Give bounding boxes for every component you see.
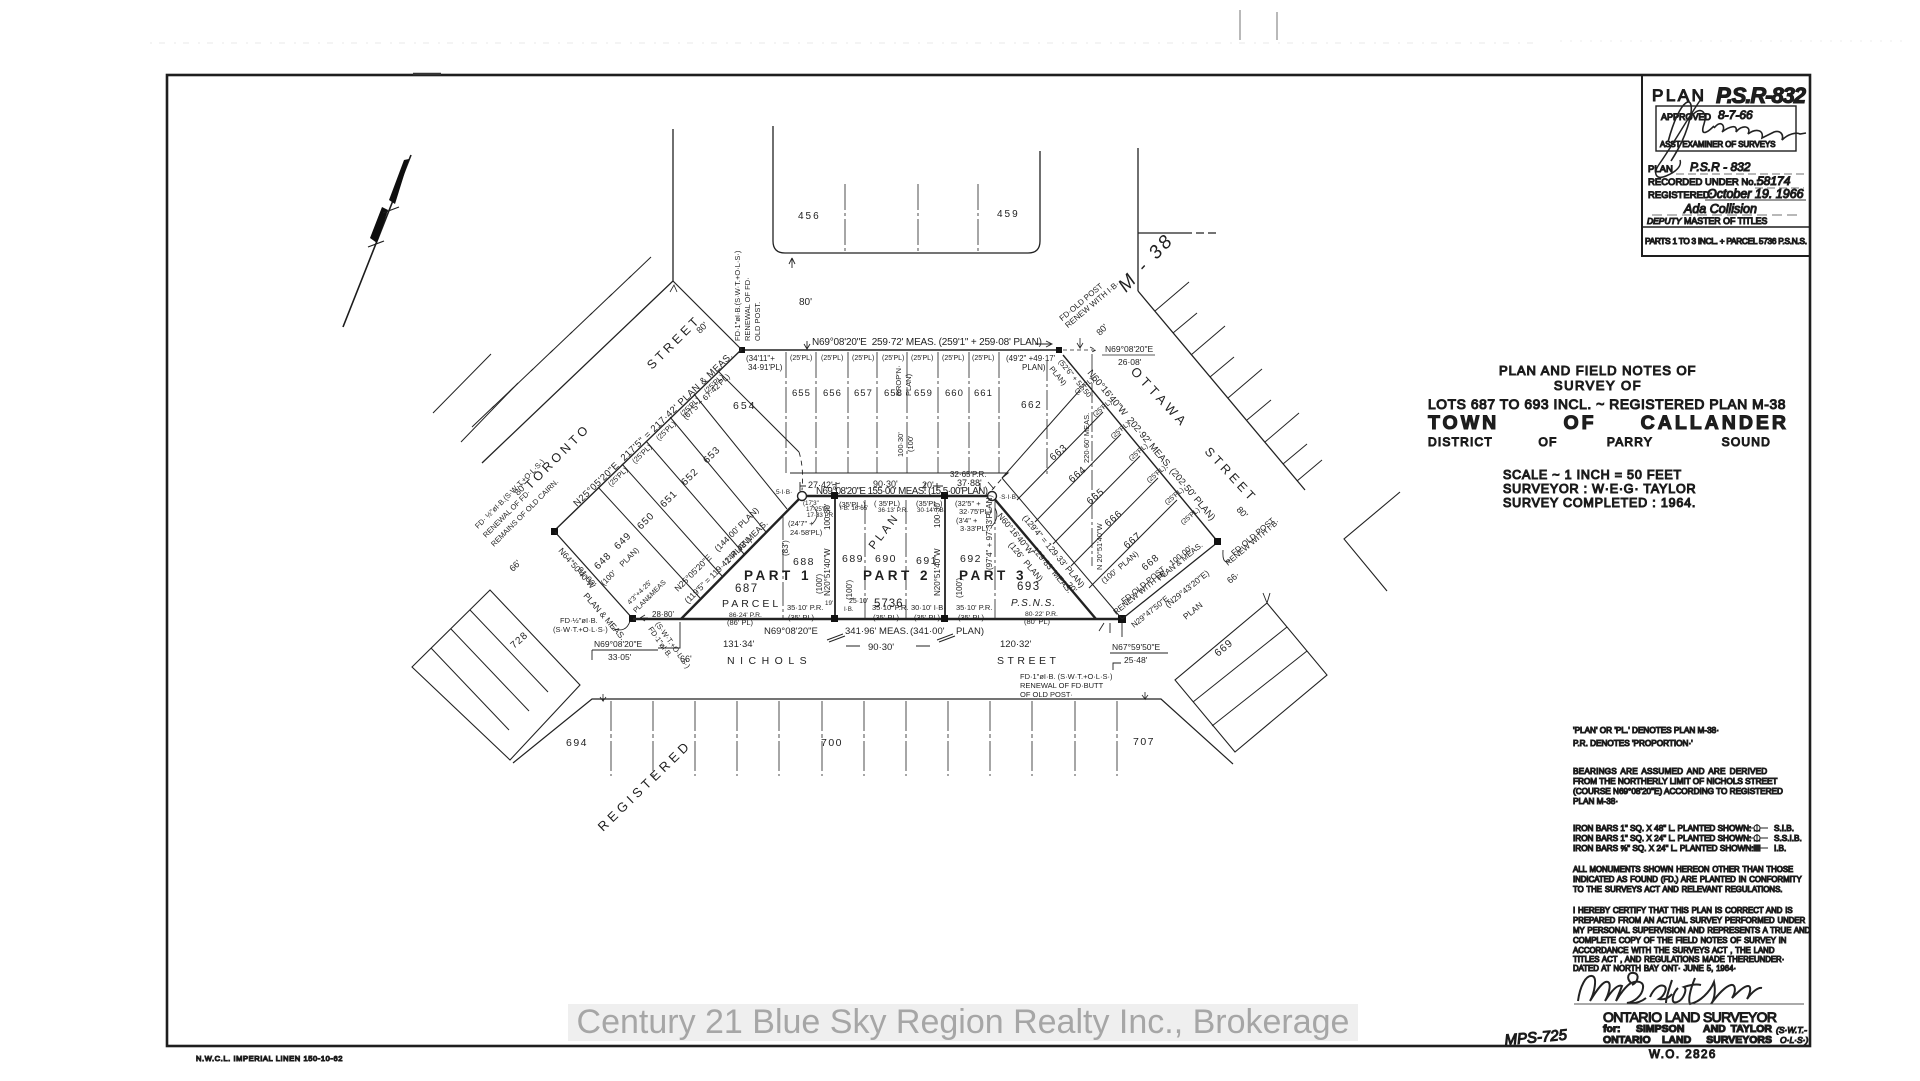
svg-text:FD·½"øI·B.: FD·½"øI·B. bbox=[560, 616, 598, 625]
svg-text:(24'7" +: (24'7" + bbox=[788, 519, 814, 528]
svg-text:PROP'N·: PROP'N· bbox=[894, 365, 903, 396]
svg-text:667: 667 bbox=[1122, 530, 1144, 551]
svg-text:687: 687 bbox=[735, 583, 759, 595]
svg-text:N69°08'20"E: N69°08'20"E bbox=[594, 639, 643, 649]
svg-text:FD·1"øI·B.(S·W·T.+O·L·S·): FD·1"øI·B.(S·W·T.+O·L·S·) bbox=[733, 250, 742, 341]
svg-text:ASST EXAMINER OF SURVEYS: ASST EXAMINER OF SURVEYS bbox=[1660, 140, 1775, 149]
svg-text:STREET: STREET bbox=[997, 655, 1059, 667]
svg-text:665: 665 bbox=[1085, 486, 1107, 507]
svg-text:PARCEL: PARCEL bbox=[722, 598, 781, 610]
svg-text:663: 663 bbox=[1048, 442, 1070, 463]
svg-text:27·42': 27·42' bbox=[808, 480, 833, 490]
svg-text:661: 661 bbox=[974, 388, 993, 399]
svg-text:707: 707 bbox=[1133, 736, 1155, 748]
svg-text:(25'PL): (25'PL) bbox=[882, 355, 904, 362]
svg-text:PREPARED FROM AN ACTUAL SURVEY: PREPARED FROM AN ACTUAL SURVEY PERFORMED… bbox=[1573, 916, 1806, 925]
svg-text:N 20°51'40"W: N 20°51'40"W bbox=[1095, 522, 1104, 570]
svg-text:66': 66' bbox=[507, 558, 523, 574]
svg-text:STREET: STREET bbox=[1202, 444, 1260, 505]
svg-text:I·B. 16·65': I·B. 16·65' bbox=[840, 505, 868, 512]
svg-text:S.S.I.B.: S.S.I.B. bbox=[1774, 834, 1802, 843]
svg-text:30·10' I·B·: 30·10' I·B· bbox=[911, 603, 946, 612]
svg-text:(83'): (83') bbox=[781, 540, 790, 556]
svg-text:I HEREBY CERTIFY THAT THIS PLA: I HEREBY CERTIFY THAT THIS PLAN IS CORRE… bbox=[1573, 906, 1793, 915]
svg-text:O·L·S·): O·L·S·) bbox=[1780, 1035, 1809, 1045]
svg-text:654: 654 bbox=[733, 400, 757, 412]
svg-text:INDICATED AS FOUND (FD.) ARE P: INDICATED AS FOUND (FD.) ARE PLANTED IN … bbox=[1573, 875, 1803, 884]
svg-text:655: 655 bbox=[792, 388, 811, 399]
svg-text:(25'PL): (25'PL) bbox=[942, 355, 964, 362]
svg-text:689: 689 bbox=[842, 553, 864, 565]
svg-text:SURVEYORS: SURVEYORS bbox=[1706, 1034, 1772, 1046]
svg-text:ONTARIO: ONTARIO bbox=[1603, 1034, 1651, 1046]
svg-text:PLAN): PLAN) bbox=[1022, 363, 1046, 372]
svg-text:RENEW WITH I·B·: RENEW WITH I·B· bbox=[1112, 567, 1170, 617]
svg-text:25·10': 25·10' bbox=[849, 598, 868, 605]
svg-text:220·60' MEAS.: 220·60' MEAS. bbox=[1082, 413, 1091, 463]
svg-text:N69°08'20"E: N69°08'20"E bbox=[764, 626, 818, 637]
svg-text:N67°59'50"E: N67°59'50"E bbox=[1112, 642, 1161, 652]
svg-text:100·30': 100·30' bbox=[823, 503, 832, 530]
svg-text:656: 656 bbox=[823, 388, 842, 399]
svg-text:FD·1"øI·B. (S·W·T.+O·L·S·): FD·1"øI·B. (S·W·T.+O·L·S·) bbox=[1020, 672, 1113, 681]
svg-text:66': 66' bbox=[680, 654, 692, 664]
svg-text:OF OLD POST·: OF OLD POST· bbox=[1020, 690, 1073, 699]
svg-text:650: 650 bbox=[635, 510, 657, 532]
svg-text:8-7-66: 8-7-66 bbox=[1718, 108, 1753, 122]
svg-text:90·30': 90·30' bbox=[873, 479, 898, 489]
svg-text:N69°08'20"E 259·72' MEAS. (25: N69°08'20"E 259·72' MEAS. (259'1" + 259·… bbox=[812, 337, 1042, 348]
svg-text:728: 728 bbox=[509, 630, 531, 651]
svg-text:35·10' P.R.: 35·10' P.R. bbox=[956, 603, 992, 612]
svg-text:RENEW WITH I·B·: RENEW WITH I·B· bbox=[1224, 517, 1282, 567]
svg-text:660: 660 bbox=[945, 388, 964, 399]
svg-text:RENEWAL OF FD·BUTT: RENEWAL OF FD·BUTT bbox=[1020, 681, 1104, 690]
svg-text:October 19. 1966: October 19. 1966 bbox=[1707, 187, 1804, 201]
svg-text:TITLES ACT , AND REGULATIONS M: TITLES ACT , AND REGULATIONS MADE THEREU… bbox=[1573, 955, 1784, 964]
svg-text:653: 653 bbox=[701, 444, 723, 466]
svg-text:PLAN AND FIELD NOTES OF: PLAN AND FIELD NOTES OF bbox=[1499, 363, 1697, 378]
svg-text:33·05': 33·05' bbox=[608, 652, 632, 662]
svg-text:657: 657 bbox=[854, 388, 873, 399]
svg-text:BEARINGS ARE ASSUMED AND ARE D: BEARINGS ARE ASSUMED AND ARE DERIVED bbox=[1573, 767, 1767, 776]
svg-text:120·32': 120·32' bbox=[1000, 639, 1032, 650]
svg-text:PARRY: PARRY bbox=[1607, 435, 1653, 449]
svg-text:669: 669 bbox=[1212, 637, 1235, 659]
svg-text:PLAN: PLAN bbox=[1181, 600, 1205, 622]
svg-text:OF: OF bbox=[1538, 435, 1557, 449]
svg-text:28·80': 28·80' bbox=[652, 610, 674, 619]
svg-text:ALL MONUMENTS SHOWN HEREON OTH: ALL MONUMENTS SHOWN HEREON OTHER THAN TH… bbox=[1573, 865, 1793, 874]
svg-text:(100' PLAN): (100' PLAN) bbox=[1100, 549, 1141, 585]
svg-text:MY PERSONAL SUPERVISION AND RE: MY PERSONAL SUPERVISION AND REPRESENTS A… bbox=[1573, 926, 1811, 935]
svg-text:(25'PL): (25'PL) bbox=[972, 355, 994, 362]
svg-text:N20°51'40"W: N20°51'40"W bbox=[823, 548, 832, 596]
svg-text:(100'): (100') bbox=[955, 577, 964, 598]
svg-text:100·30': 100·30' bbox=[933, 501, 942, 528]
svg-text:(86' PL): (86' PL) bbox=[727, 618, 754, 627]
svg-text:LOTS 687 TO 693 INCL. ~ REGIST: LOTS 687 TO 693 INCL. ~ REGISTERED PLAN … bbox=[1428, 397, 1786, 412]
svg-text:RENEWAL OF FD·: RENEWAL OF FD· bbox=[743, 277, 752, 341]
svg-text:CALLANDER: CALLANDER bbox=[1641, 412, 1789, 434]
svg-text:34·91'PL): 34·91'PL) bbox=[748, 363, 783, 372]
svg-text:659: 659 bbox=[914, 388, 933, 399]
svg-text:(35' PL): (35' PL) bbox=[788, 613, 815, 622]
svg-text:STREET: STREET bbox=[644, 313, 704, 373]
svg-text:652: 652 bbox=[679, 466, 701, 488]
svg-text:S.I.B.: S.I.B. bbox=[1774, 824, 1794, 833]
svg-text:I.B.: I.B. bbox=[1774, 844, 1786, 853]
svg-text:OF: OF bbox=[1563, 412, 1596, 434]
svg-text:58174: 58174 bbox=[1757, 174, 1791, 188]
svg-text:694: 694 bbox=[566, 737, 588, 749]
svg-text:32·65'P.R.: 32·65'P.R. bbox=[950, 470, 987, 479]
svg-text:(100'): (100') bbox=[845, 579, 854, 600]
svg-text:662: 662 bbox=[1021, 400, 1042, 411]
svg-text:700: 700 bbox=[821, 737, 843, 749]
svg-text:IRON BARS ⅝" SQ. X 24" L. PLA: IRON BARS ⅝" SQ. X 24" L. PLANTED SHOWN:… bbox=[1573, 844, 1760, 853]
svg-text:N20°51'40"W: N20°51'40"W bbox=[933, 548, 942, 596]
svg-text:(100'): (100') bbox=[815, 573, 824, 594]
svg-text:I·B.: I·B. bbox=[844, 606, 854, 613]
svg-text:DATED AT NORTH BAY ONT· JUNE 5: DATED AT NORTH BAY ONT· JUNE 5, 1964· bbox=[1573, 964, 1736, 973]
svg-text:(25'PL): (25'PL) bbox=[821, 355, 843, 362]
svg-text:PART 2: PART 2 bbox=[863, 568, 931, 583]
svg-text:35·10' P.R.: 35·10' P.R. bbox=[872, 603, 908, 612]
svg-text:37·88': 37·88' bbox=[957, 478, 982, 488]
svg-text:PART 1: PART 1 bbox=[744, 568, 812, 583]
svg-text:PLAN M-38·: PLAN M-38· bbox=[1573, 797, 1618, 806]
svg-text:REGISTERED:: REGISTERED: bbox=[1648, 190, 1712, 201]
svg-text:PLAN): PLAN) bbox=[956, 626, 984, 637]
svg-text:PARTS 1 TO 3 INCL. + PARCEL 57: PARTS 1 TO 3 INCL. + PARCEL 5736 P.S.N.S… bbox=[1645, 237, 1807, 246]
svg-text:·S·I·B·: ·S·I·B· bbox=[999, 494, 1018, 501]
svg-text:M - 38: M - 38 bbox=[1114, 230, 1178, 297]
svg-text:PLAN): PLAN) bbox=[904, 373, 913, 396]
svg-text:P.S.N.S.: P.S.N.S. bbox=[1011, 598, 1056, 609]
svg-text:459: 459 bbox=[997, 209, 1020, 220]
svg-text:131·34': 131·34' bbox=[723, 639, 755, 650]
svg-text:(80' PL): (80' PL) bbox=[1024, 617, 1051, 626]
svg-text:666: 666 bbox=[1103, 508, 1125, 529]
svg-text:(35' PL): (35' PL) bbox=[958, 613, 985, 622]
svg-text:690: 690 bbox=[875, 553, 897, 565]
svg-text:REGISTERED: REGISTERED bbox=[595, 737, 695, 834]
svg-text:W.O. 2826: W.O. 2826 bbox=[1649, 1049, 1717, 1061]
svg-text:DISTRICT: DISTRICT bbox=[1428, 435, 1493, 449]
svg-text:(25'PL): (25'PL) bbox=[790, 355, 812, 362]
svg-text:(COURSE N69°08'20"E) ACCORDING: (COURSE N69°08'20"E) ACCORDING TO REGIST… bbox=[1573, 787, 1783, 796]
svg-text:341·96' MEAS.: 341·96' MEAS. bbox=[845, 626, 909, 637]
svg-text:688: 688 bbox=[793, 556, 815, 568]
svg-text:(34'11"+: (34'11"+ bbox=[746, 354, 775, 363]
svg-text:ACCORDANCE WITH THE SURVEYS AC: ACCORDANCE WITH THE SURVEYS ACT , THE LA… bbox=[1573, 946, 1775, 955]
svg-text:90·30': 90·30' bbox=[868, 642, 894, 653]
svg-text:80': 80' bbox=[1094, 322, 1110, 338]
svg-text:(S·W·T.+O·L·S·): (S·W·T.+O·L·S·) bbox=[553, 625, 608, 634]
svg-text:COMPLETE COPY OF THE FIELD NOT: COMPLETE COPY OF THE FIELD NOTES OF SURV… bbox=[1573, 936, 1786, 945]
svg-text:SOUND: SOUND bbox=[1722, 435, 1771, 449]
svg-text:(S·W.T.-: (S·W.T.- bbox=[1776, 1025, 1807, 1035]
svg-text:20': 20' bbox=[922, 480, 934, 490]
svg-text:(35' PL): (35' PL) bbox=[914, 613, 941, 622]
svg-text:80': 80' bbox=[1235, 505, 1251, 521]
svg-text:66·: 66· bbox=[1225, 570, 1241, 586]
svg-text:(25'PL): (25'PL) bbox=[911, 355, 933, 362]
svg-text:24·58'PL): 24·58'PL) bbox=[790, 528, 823, 537]
svg-text:LAND: LAND bbox=[1662, 1034, 1692, 1046]
svg-text:(100': (100' bbox=[906, 435, 915, 452]
svg-text:(25'PL): (25'PL) bbox=[852, 355, 874, 362]
svg-text:80': 80' bbox=[799, 297, 812, 308]
svg-text:5·I·B·: 5·I·B· bbox=[776, 489, 792, 496]
svg-text:P.S.R-832: P.S.R-832 bbox=[1716, 83, 1807, 108]
svg-text:100·30': 100·30' bbox=[896, 432, 905, 457]
svg-text:NICHOLS: NICHOLS bbox=[727, 655, 812, 667]
svg-text:N25°05'20"E 217'5" = 217·42': N25°05'20"E 217'5" = 217·42' PLAN & MEAS… bbox=[571, 350, 735, 509]
svg-text:692: 692 bbox=[960, 553, 982, 565]
svg-text:P.S.R - 832: P.S.R - 832 bbox=[1690, 160, 1751, 174]
svg-text:(341·00': (341·00' bbox=[910, 626, 945, 637]
svg-text:(35' PL): (35' PL) bbox=[873, 613, 900, 622]
svg-text:651: 651 bbox=[658, 488, 680, 510]
svg-text:P.R. DENOTES 'PROPORTION·': P.R. DENOTES 'PROPORTION·' bbox=[1573, 739, 1693, 748]
svg-text:(97'4" + 97·33'PLAN): (97'4" + 97·33'PLAN) bbox=[985, 495, 994, 570]
svg-text:Ada Collision: Ada Collision bbox=[1683, 202, 1757, 216]
svg-text:SCALE ~ 1 INCH = 50 FEET: SCALE ~ 1 INCH = 50 FEET bbox=[1503, 468, 1682, 482]
svg-text:19': 19' bbox=[825, 600, 833, 607]
svg-text:N69°08'20"E: N69°08'20"E bbox=[1105, 344, 1154, 354]
svg-text:FD· ½"øI·B.(S·W·T.+O·L·S·): FD· ½"øI·B.(S·W·T.+O·L·S·) bbox=[473, 457, 547, 531]
svg-text:SURVEYOR : W·E·G· TAYLOR: SURVEYOR : W·E·G· TAYLOR bbox=[1503, 482, 1696, 496]
svg-text:SURVEY COMPLETED : 1964.: SURVEY COMPLETED : 1964. bbox=[1503, 496, 1696, 510]
svg-text:'PLAN' OR 'PL.' DENOTES PLAN M: 'PLAN' OR 'PL.' DENOTES PLAN M-38· bbox=[1573, 726, 1719, 735]
svg-text:N.W.C.L. IMPERIAL LINEN 15: N.W.C.L. IMPERIAL LINEN 150-10-62 bbox=[196, 1054, 343, 1063]
svg-text:SURVEY OF: SURVEY OF bbox=[1554, 378, 1642, 393]
svg-text:DEPUTY: DEPUTY bbox=[1647, 216, 1683, 226]
svg-text:25·48': 25·48' bbox=[1124, 655, 1148, 665]
svg-text:TO THE SURVEYS ACT AND RELEVAN: TO THE SURVEYS ACT AND RELEVANT REGULATI… bbox=[1573, 885, 1782, 894]
svg-text:IRON BARS 1" SQ. X 48" L. PLA: IRON BARS 1" SQ. X 48" L. PLANTED SHOWN:… bbox=[1573, 824, 1760, 833]
svg-text:(49'2" +49·17': (49'2" +49·17' bbox=[1006, 354, 1056, 363]
svg-text:TOWN: TOWN bbox=[1428, 412, 1499, 434]
svg-text:IRON BARS 1" SQ. X 24" L. PLA: IRON BARS 1" SQ. X 24" L. PLANTED SHOWN:… bbox=[1573, 834, 1760, 843]
svg-text:FROM THE NORTHERLY LIMIT OF NI: FROM THE NORTHERLY LIMIT OF NICHOLS STRE… bbox=[1573, 777, 1777, 786]
svg-text:MASTER OF TITLES: MASTER OF TITLES bbox=[1684, 216, 1768, 226]
svg-text:35·10' P.R.: 35·10' P.R. bbox=[787, 603, 823, 612]
svg-text:PLAN: PLAN bbox=[867, 511, 902, 552]
svg-text:PLAN: PLAN bbox=[1648, 164, 1673, 175]
svg-text:456: 456 bbox=[798, 211, 821, 222]
svg-text:OLD POST.: OLD POST. bbox=[753, 302, 762, 341]
svg-text:664: 664 bbox=[1067, 464, 1089, 485]
